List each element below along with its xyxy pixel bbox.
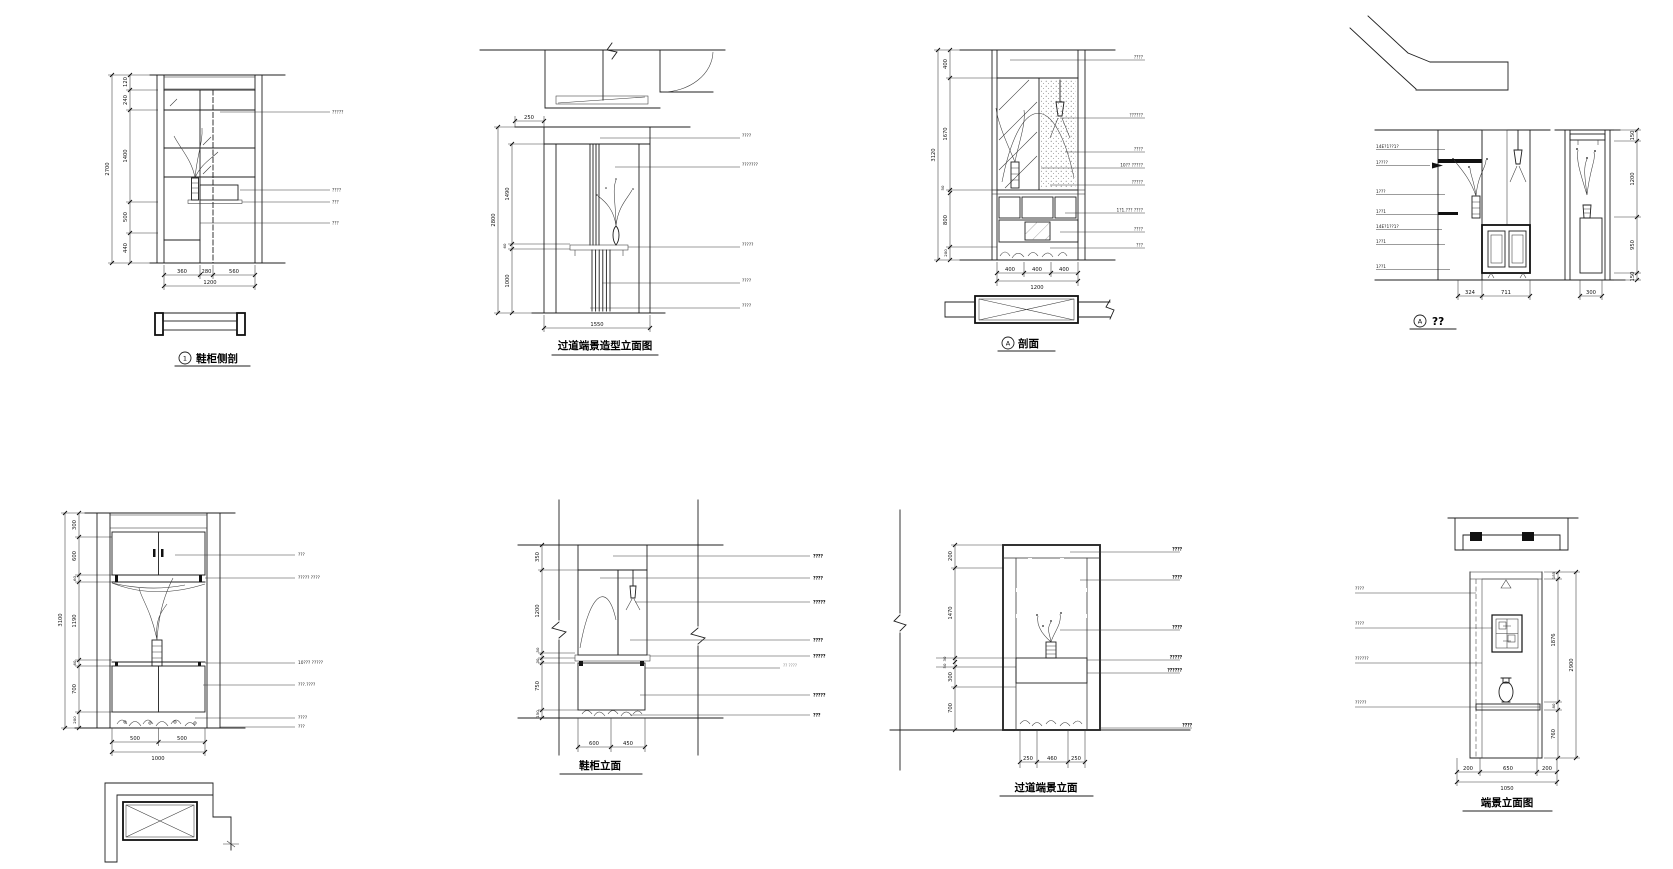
- d1-dimensions-bottom: 360 280 560 1200: [162, 265, 257, 290]
- dim-label: 50: [942, 663, 947, 668]
- plant-icon: [996, 108, 1024, 162]
- dim-label: 1190: [72, 614, 78, 627]
- d1-plan-section: [155, 313, 245, 335]
- leader-label: ????: [813, 576, 823, 582]
- d6-title: 鞋柜立面: [560, 759, 642, 774]
- drawing-2-corridor-feature-elevation: 250 2800 1490 60 1000 ???? ??????? ?????…: [440, 30, 760, 365]
- dim-label: 150: [1630, 131, 1636, 141]
- pendant-lamp-icon: [1514, 150, 1522, 164]
- dim-label: 2900: [1569, 658, 1575, 671]
- d1-leaders: ????? ???? ??? ???: [200, 110, 343, 227]
- d3-dimensions-left: 3120 400 1670 50 800 200: [931, 48, 997, 262]
- d5-plan-section: [105, 783, 239, 862]
- dim-label: 120: [123, 77, 129, 87]
- leader-label: 14E?1??1?: [1376, 224, 1399, 230]
- dim-label: 250: [1023, 756, 1033, 762]
- vase-icon: [1499, 678, 1513, 702]
- dim-label: 800: [943, 215, 949, 225]
- d6-leaders: ???? ???? ????? ???? ????? ?? ???? ?????…: [600, 554, 826, 719]
- dim-label: 600: [589, 741, 599, 747]
- pebbles-icon: [1000, 252, 1067, 258]
- cabinet-handle-icon: [161, 549, 164, 557]
- d1-elevation: [150, 75, 285, 263]
- d5-dimensions-bottom: 500 500 1000: [110, 728, 207, 762]
- leader-label: ??????: [1129, 113, 1143, 119]
- dim-label: 50: [535, 647, 540, 652]
- dim-label: 80: [1551, 703, 1556, 708]
- d8-dimensions-right: 185 1876 80 760 2900: [1544, 570, 1580, 760]
- leader-label: 1??1: [1376, 209, 1386, 215]
- dim-label: 200: [1542, 766, 1552, 772]
- d4-dimensions-bottom: 324 711: [1456, 280, 1532, 300]
- leader-label: ????: [298, 715, 307, 721]
- leader-label: 1??1: [1376, 264, 1386, 270]
- dim-label: 250: [1071, 756, 1081, 762]
- dim-label: 950: [1630, 240, 1636, 250]
- leader-label: ????: [1172, 575, 1182, 581]
- d2-title: 过道端景造型立面图: [552, 339, 658, 355]
- d7-dimensions-left: 200 1470 30 50 300 700: [936, 543, 1016, 732]
- dim-label: 750: [535, 681, 541, 691]
- leader-label: ?????: [332, 110, 343, 116]
- dim-label: 350: [535, 552, 541, 562]
- d4-title: A ??: [1410, 315, 1456, 329]
- dim-label: 400: [943, 59, 949, 69]
- d4-dimensions-right: 150 1200 950 150: [1614, 128, 1641, 282]
- dim-label: 300: [948, 672, 954, 682]
- dim-label: 360: [177, 269, 187, 275]
- d8-dimensions-bottom: 200 650 200 1050: [1455, 758, 1559, 792]
- leader-label: ???: [813, 713, 821, 719]
- dim-label: 60: [502, 243, 507, 248]
- dim-label: 1400: [123, 149, 129, 162]
- dim-label: 3100: [58, 613, 64, 626]
- d3-title: A 剖面: [998, 337, 1055, 351]
- leader-label: ????: [813, 554, 823, 560]
- leader-label: ???.????: [298, 682, 315, 688]
- dim-label: 500: [177, 736, 187, 742]
- leader-label: ????: [1172, 547, 1182, 553]
- d8-plan: [1448, 518, 1578, 550]
- leader-label: ????: [1355, 621, 1364, 627]
- leader-label: ?????: [742, 242, 753, 248]
- plant-icon: [598, 180, 632, 226]
- dim-label: 560: [229, 269, 239, 275]
- d3-plan-section: [945, 296, 1114, 323]
- dim-label: 1050: [1500, 786, 1513, 792]
- door-swing-icon: [662, 52, 713, 92]
- dim-label: 150: [1630, 272, 1636, 282]
- drawing-title: 鞋柜侧剖: [196, 352, 238, 365]
- dim-label: 60: [72, 576, 77, 581]
- leader-label: ?? ????: [783, 663, 797, 668]
- leader-label: ?????: [1170, 655, 1183, 661]
- vase-icon: [1472, 196, 1480, 218]
- dim-label: 500: [123, 212, 129, 222]
- leader-label: ???: [332, 200, 339, 206]
- dim-label: 30: [535, 658, 540, 663]
- d2-dimensions-bottom: 1550: [542, 315, 652, 332]
- leader-label: ????: [742, 303, 751, 309]
- dim-label: 1200: [1630, 172, 1636, 185]
- d3-elevation: [960, 50, 1115, 260]
- drawing-4-louver-feature: 14E?1??1? 1???? 1??? 1??1 14E?1??1? 1??1…: [1280, 10, 1670, 340]
- leader-label: ????: [1134, 227, 1143, 233]
- d2-elevation: [515, 127, 690, 313]
- drawing-7-corridor-end-elevation: 200 1470 30 50 300 700 ???? ???? ???? ??…: [870, 490, 1200, 810]
- plant-icon: [1577, 150, 1594, 195]
- cad-sheet: 2700 120 240 1400 500 440 ????? ???? ???…: [0, 0, 1673, 869]
- dim-label: 500: [130, 736, 140, 742]
- leader-label: 1???: [1376, 189, 1386, 195]
- dim-label: 400: [1059, 267, 1069, 273]
- d2-plan: [480, 43, 725, 108]
- plant-icon: [1454, 160, 1486, 196]
- leader-label: ?????: [1132, 180, 1143, 186]
- leader-label: ????: [742, 278, 751, 284]
- break-symbol-icon: [1106, 300, 1114, 319]
- leader-label: ???: [298, 724, 305, 730]
- dim-label: 400: [1005, 267, 1015, 273]
- lattice-ornament-icon: [1492, 615, 1522, 652]
- d7-title: 过道端景立面: [1000, 781, 1093, 796]
- d3-leaders: ???? ?????? ???? 10?? ????? ????? 1?1.??…: [1010, 55, 1145, 249]
- d7-elevation: [1003, 545, 1100, 730]
- plant-icon: [174, 128, 218, 178]
- dim-label: 1000: [151, 756, 164, 762]
- leader-label: ??????: [1355, 656, 1369, 662]
- leader-label: 14E?1??1?: [1376, 144, 1399, 150]
- cabinet-handle-icon: [153, 549, 156, 557]
- dim-label: 60: [72, 660, 77, 665]
- d8-title: 端景立面图: [1463, 796, 1552, 811]
- vase-icon: [1583, 205, 1591, 218]
- leader-label: ????: [1134, 147, 1143, 153]
- detail-bubble-label: A: [1418, 318, 1423, 326]
- dim-label: 1000: [505, 274, 511, 287]
- leader-label: 1?1.??? ????: [1117, 208, 1143, 214]
- dim-label: 1876: [1551, 633, 1557, 646]
- leader-label: 1??1: [1376, 239, 1386, 245]
- d3-dimensions-bottom: 400 400 400 1200: [995, 262, 1080, 291]
- leader-label: ?????: [813, 600, 826, 606]
- d6-elevation: [575, 545, 650, 716]
- leader-label: 1????: [1376, 160, 1388, 166]
- detail-bubble-label: A: [1006, 340, 1011, 348]
- leader-label: ??????: [1167, 668, 1182, 674]
- drawing-title: 过道端景造型立面图: [558, 339, 653, 352]
- leader-label: ????: [332, 188, 341, 194]
- dim-label: 2800: [491, 213, 497, 226]
- d1-title: 1 鞋柜侧剖: [175, 352, 250, 366]
- d6-reference-lines: [518, 500, 723, 755]
- d5-elevation: [75, 513, 245, 728]
- dim-label: 324: [1465, 290, 1476, 296]
- d4-side-view: 300: [1555, 130, 1620, 300]
- dim-label: 760: [1551, 729, 1557, 739]
- dim-label: 1200: [203, 280, 216, 286]
- pebbles-icon: [117, 720, 195, 726]
- dim-label: 600: [72, 551, 78, 561]
- d2-dimensions: 250 2800 1490 60 1000: [491, 115, 570, 315]
- leader-label: ???: [298, 552, 305, 558]
- dim-label: 650: [1503, 766, 1513, 772]
- leader-label: 10?? ?????: [1120, 163, 1143, 169]
- dim-label: 150: [535, 710, 540, 718]
- leader-label: ????: [1355, 586, 1364, 592]
- drawing-8-end-scene-elevation: ???? ???? ?????? ????? 185 1876 80 760 2…: [1300, 480, 1640, 825]
- dim-label: 280: [202, 269, 212, 275]
- leader-label: ????: [1182, 723, 1192, 729]
- drawing-3-section: 3120 400 1670 50 800 200 ???? ?????? ???…: [860, 30, 1170, 355]
- leader-label: ???: [1136, 243, 1143, 249]
- dim-label: 200: [72, 716, 77, 724]
- d8-elevation: [1470, 572, 1542, 758]
- detail-bubble-label: 1: [183, 355, 187, 363]
- d7-leaders: ???? ???? ???? ????? ?????? ????: [1060, 547, 1193, 729]
- dim-label: 240: [123, 95, 129, 105]
- leader-label: ???: [332, 221, 339, 227]
- leader-label: ????: [742, 133, 751, 139]
- break-symbol-icon: [607, 43, 617, 59]
- drawing-6-shoe-cabinet-elevation: 350 1200 50 30 750 150 ???? ???? ????? ?…: [480, 470, 865, 782]
- leader-label: ?????: [813, 693, 826, 699]
- leader-label: ????? ????: [298, 575, 320, 581]
- dim-label: 400: [1032, 267, 1042, 273]
- dim-label: 460: [1047, 756, 1057, 762]
- drawing-title: 鞋柜立面: [579, 759, 621, 772]
- d5-dimensions-left: 3100 300 600 60 1190 60 700 200: [58, 511, 112, 730]
- pebbles-icon: [1020, 721, 1082, 727]
- d1-dimensions-left: 2700 120 240 1400 500 440: [105, 73, 164, 265]
- dim-label: 2700: [105, 162, 111, 175]
- dim-label: 1490: [505, 187, 511, 200]
- leader-label: ?????: [813, 654, 826, 660]
- drawing-1-shoe-cabinet-side-section: 2700 120 240 1400 500 440 ????? ???? ???…: [100, 40, 410, 375]
- drawing-title: 过道端景立面: [1015, 781, 1078, 794]
- dim-label: 200: [1463, 766, 1473, 772]
- d6-dimensions-left: 350 1200 50 30 750 150: [535, 543, 578, 720]
- d7-dimensions-bottom: 250 460 250: [1018, 730, 1087, 768]
- dim-label: 30: [942, 656, 947, 661]
- dim-label: 700: [72, 684, 78, 694]
- dim-label: 450: [623, 741, 633, 747]
- dim-label: 700: [948, 703, 954, 713]
- drawing-5-cabinet-elevation: 3100 300 600 60 1190 60 700 200 ??? ????…: [55, 470, 355, 820]
- dim-label: 1200: [535, 604, 541, 617]
- d6-dimensions-bottom: 600 450: [576, 718, 647, 752]
- vase-icon: [613, 226, 619, 245]
- d7-reference-lines: [890, 510, 1190, 770]
- leader-label: ?????: [1355, 700, 1366, 706]
- dim-label: 3120: [931, 148, 937, 161]
- dim-label: 1550: [590, 322, 603, 328]
- d4-corridor-sketch: [1350, 16, 1508, 90]
- dim-label: 300: [72, 520, 78, 530]
- dim-label: 440: [123, 243, 129, 253]
- break-symbol-icon: [894, 615, 906, 631]
- dim-label: 250: [524, 115, 534, 121]
- leader-label: ????: [1134, 55, 1143, 61]
- d5-leaders: ??? ????? ???? 10??? ????? ???.???? ????…: [175, 552, 323, 730]
- leader-label: 10??? ?????: [298, 660, 323, 666]
- leader-arrow-icon: [1432, 163, 1443, 169]
- dim-label: 200: [943, 249, 948, 257]
- leader-label: ????: [1172, 625, 1182, 631]
- drawing-title: 剖面: [1018, 337, 1040, 350]
- leader-label: ???????: [742, 162, 758, 168]
- break-symbol-icon: [552, 622, 705, 644]
- dim-label: 200: [948, 551, 954, 561]
- dim-label: 185: [1551, 571, 1556, 579]
- leader-label: ????: [813, 638, 823, 644]
- pendant-lamp-icon: [630, 586, 636, 598]
- dim-label: 1200: [1030, 285, 1043, 291]
- dim-label: 300: [1586, 290, 1596, 296]
- dim-label: 1670: [943, 127, 949, 140]
- dim-label: 711: [1501, 290, 1511, 296]
- dim-label: 50: [940, 185, 945, 190]
- drawing-title: 端景立面图: [1481, 796, 1534, 809]
- dim-label: 1470: [948, 606, 954, 619]
- drawing-title: ??: [1432, 316, 1444, 328]
- plant-icon: [1038, 614, 1061, 642]
